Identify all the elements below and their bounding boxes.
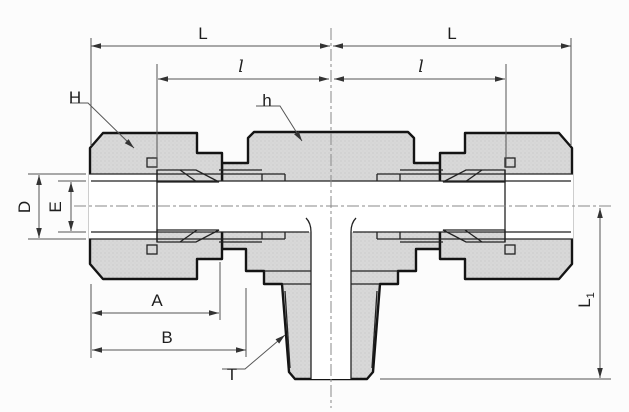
dim-label-L1-main: L [575,298,594,307]
dim-label-H: H [69,88,81,107]
dim-label-L1: L1 [575,292,597,308]
leader-T [222,333,287,369]
dim-label-L-right: L [447,24,456,43]
dim-label-D: D [15,201,34,213]
tee-fitting-section-drawing: L L l l H h D E A B T L1 [0,0,629,412]
dimension-L-left [91,38,330,146]
dim-label-A: A [151,291,163,310]
drawing-canvas: L L l l H h D E A B T L1 [0,0,629,412]
dim-label-L-left: L [198,24,207,43]
dim-label-E: E [46,201,65,212]
dim-label-B: B [161,328,172,347]
dim-label-T: T [227,365,237,384]
dim-label-L1-sub: 1 [585,292,597,298]
dim-label-l-left: l [238,57,243,77]
dimension-L-right [333,38,571,146]
dim-label-h: h [262,91,271,110]
dim-label-l-right: l [418,57,423,77]
